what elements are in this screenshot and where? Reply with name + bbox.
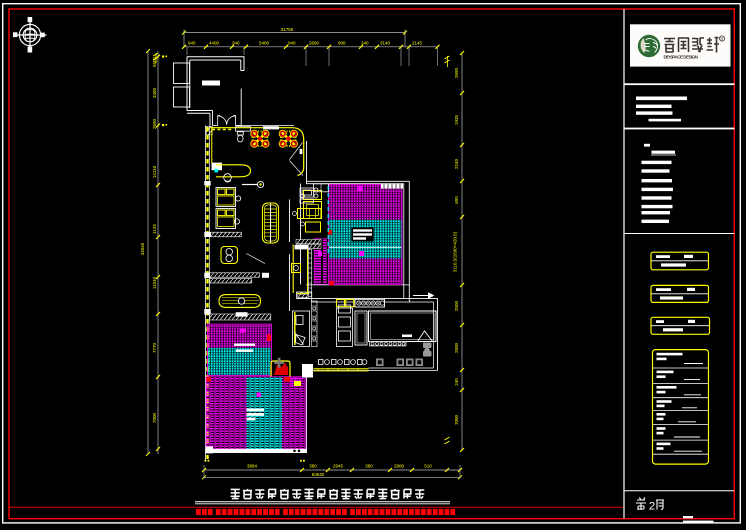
svg-text:3894: 3894 — [247, 464, 258, 469]
svg-text:510: 510 — [424, 464, 432, 469]
svg-text:4400: 4400 — [209, 40, 220, 45]
svg-text:380: 380 — [309, 464, 317, 469]
svg-text:34045: 34045 — [140, 242, 145, 255]
svg-text:900: 900 — [338, 40, 346, 45]
svg-text:2500: 2500 — [454, 300, 459, 311]
svg-text:2900: 2900 — [394, 464, 405, 469]
svg-text:940: 940 — [188, 40, 196, 45]
svg-text:240: 240 — [454, 378, 459, 386]
svg-text:3110.5(2690+420.5): 3110.5(2690+420.5) — [453, 231, 458, 272]
svg-text:3140: 3140 — [380, 40, 391, 45]
svg-text:1935: 1935 — [454, 114, 459, 125]
svg-text:11540: 11540 — [152, 276, 157, 289]
svg-text:7000: 7000 — [454, 414, 459, 425]
svg-text:2500: 2500 — [454, 342, 459, 353]
svg-text:2: 2 — [649, 501, 655, 513]
svg-text:3400: 3400 — [152, 87, 157, 98]
svg-text:2945: 2945 — [333, 464, 344, 469]
svg-text:600: 600 — [454, 196, 459, 204]
svg-text:340: 340 — [361, 40, 369, 45]
svg-text:7000: 7000 — [152, 412, 157, 423]
svg-text:2690: 2690 — [309, 40, 320, 45]
svg-text:5400: 5400 — [259, 40, 270, 45]
svg-text:2690: 2690 — [152, 118, 157, 129]
svg-text:5600: 5600 — [152, 56, 157, 67]
svg-text:2240: 2240 — [454, 158, 459, 169]
svg-text:7770: 7770 — [152, 342, 157, 353]
svg-text:63540: 63540 — [312, 472, 325, 477]
svg-text:2690: 2690 — [454, 67, 459, 78]
svg-text:31750: 31750 — [281, 27, 294, 32]
svg-text:380: 380 — [365, 464, 373, 469]
svg-text:340: 340 — [232, 40, 240, 45]
svg-text:R: R — [720, 36, 723, 41]
svg-text:1125: 1125 — [152, 224, 157, 234]
svg-text:2145: 2145 — [412, 40, 423, 45]
svg-text:14110: 14110 — [152, 165, 157, 178]
svg-text:940: 940 — [288, 40, 296, 45]
svg-text:DE•SPACE DESIGN: DE•SPACE DESIGN — [664, 54, 699, 59]
